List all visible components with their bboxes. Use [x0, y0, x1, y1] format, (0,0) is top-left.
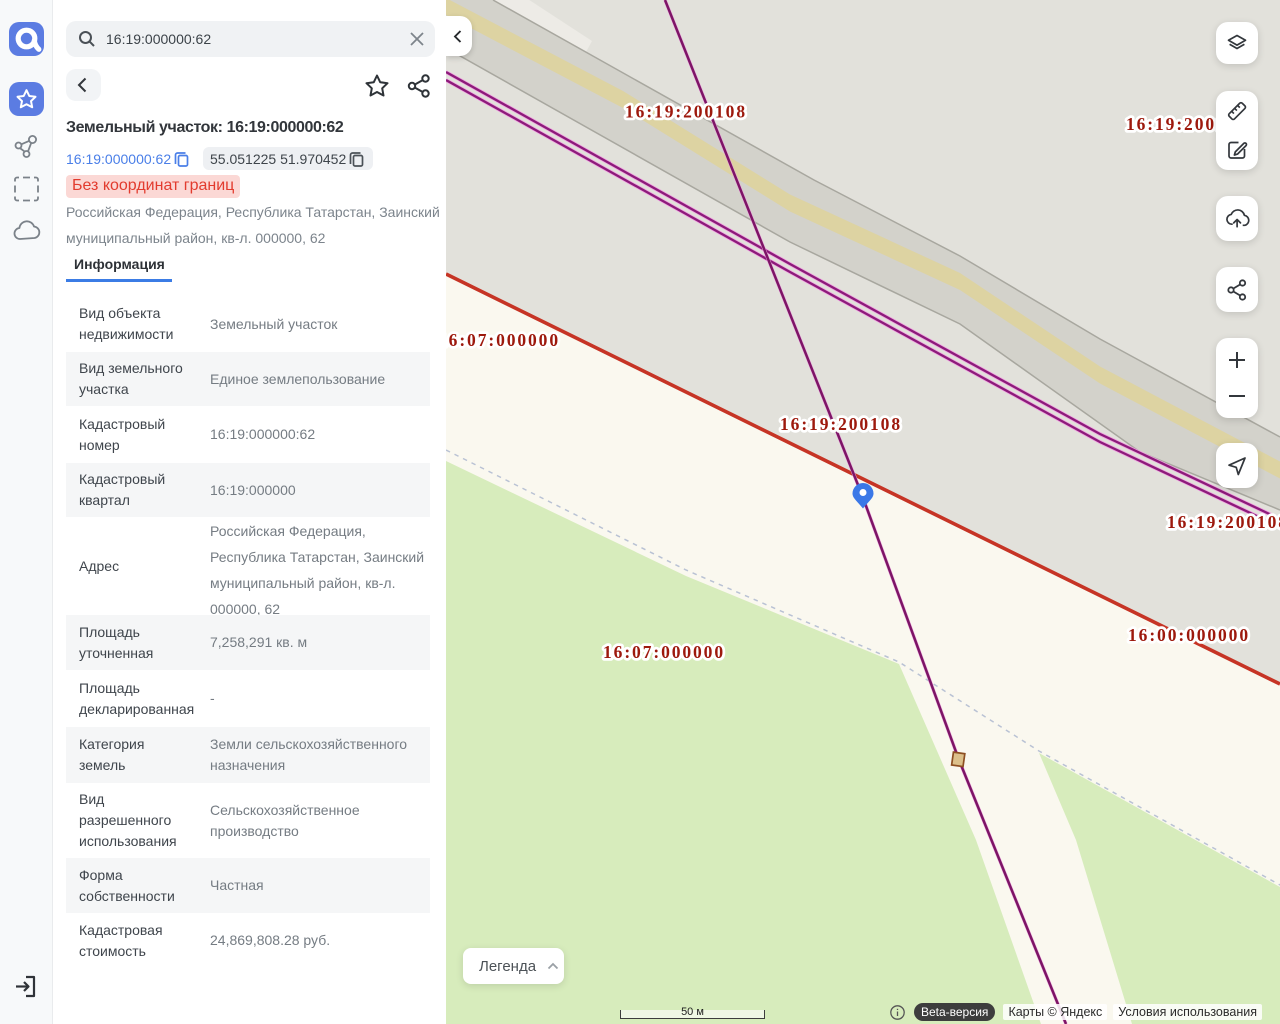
svg-text:16:07:000000: 16:07:000000	[446, 330, 560, 350]
svg-text:16:19:200108: 16:19:200108	[780, 414, 902, 434]
svg-text:16:19:200108: 16:19:200108	[625, 102, 747, 122]
svg-text:16:07:000000: 16:07:000000	[603, 642, 725, 662]
svg-text:16:00:000000: 16:00:000000	[1128, 625, 1250, 645]
svg-text:16:19:200108: 16:19:200108	[1167, 512, 1280, 532]
